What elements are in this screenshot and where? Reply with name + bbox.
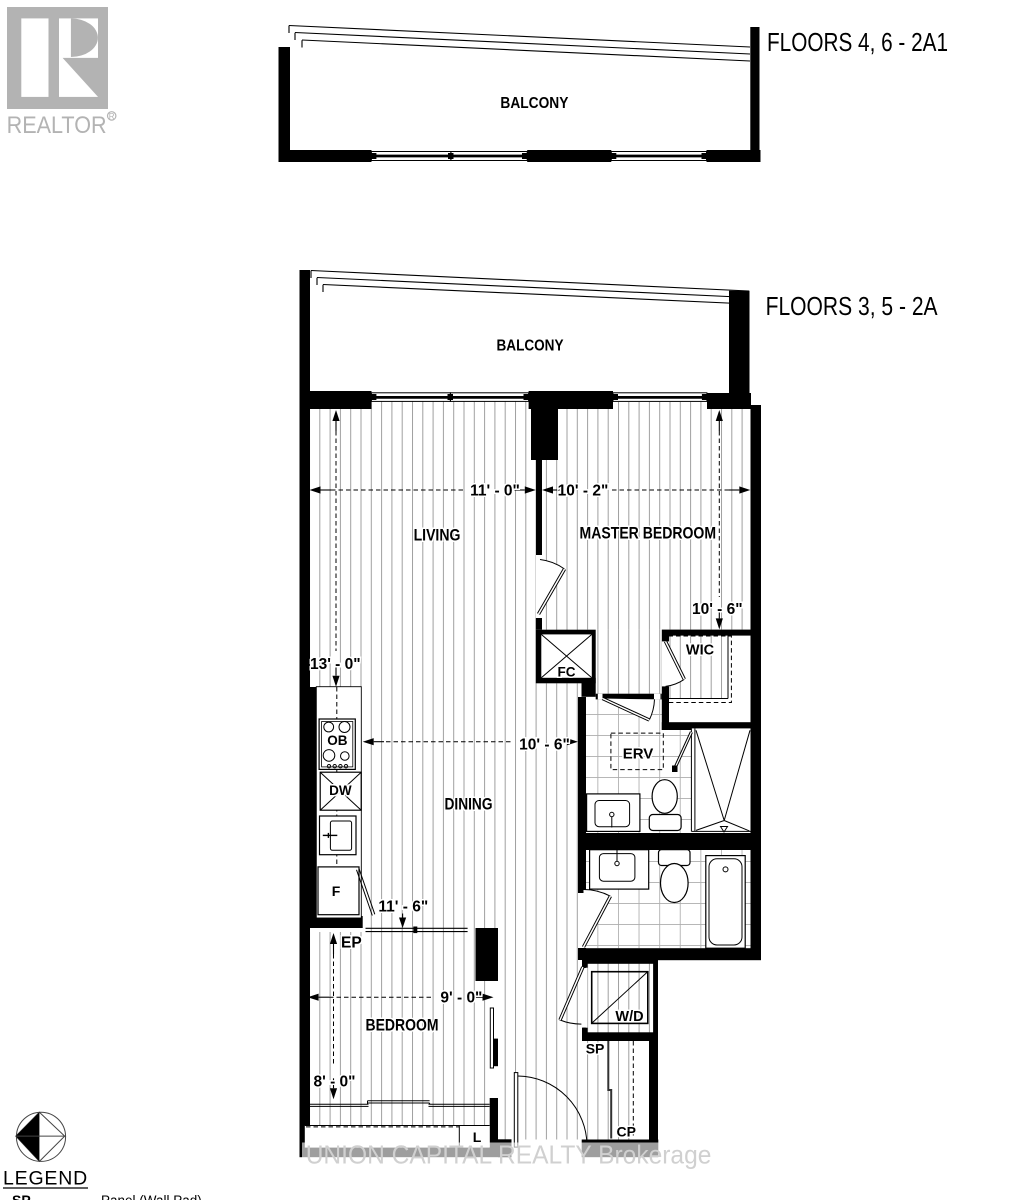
svg-text:OB: OB bbox=[327, 733, 348, 748]
svg-text:LIVING: LIVING bbox=[414, 526, 461, 545]
svg-text:SP: SP bbox=[586, 1041, 605, 1057]
svg-text:BALCONY: BALCONY bbox=[500, 95, 568, 112]
svg-text:11' - 6": 11' - 6" bbox=[378, 899, 428, 916]
svg-text:10' - 6": 10' - 6" bbox=[519, 737, 570, 754]
svg-text:SP: SP bbox=[12, 1192, 31, 1200]
svg-text:FLOORS 3, 5 - 2A: FLOORS 3, 5 - 2A bbox=[766, 291, 939, 321]
svg-text:BEDROOM: BEDROOM bbox=[366, 1015, 439, 1034]
svg-text:CP: CP bbox=[617, 1124, 636, 1140]
svg-text:DINING: DINING bbox=[445, 795, 493, 814]
svg-text:FLOORS 4, 6 - 2A1: FLOORS 4, 6 - 2A1 bbox=[767, 27, 948, 57]
svg-text:DW: DW bbox=[329, 783, 352, 798]
svg-text:LEGEND: LEGEND bbox=[3, 1168, 88, 1190]
svg-text:10' - 6": 10' - 6" bbox=[692, 601, 743, 618]
svg-text:UNION CAPITAL REALTY Brokerag: UNION CAPITAL REALTY Brokerage bbox=[306, 1140, 712, 1170]
svg-text:13' - 0": 13' - 0" bbox=[310, 656, 361, 673]
svg-text:REALTOR: REALTOR bbox=[7, 112, 107, 139]
svg-text:9' - 0": 9' - 0" bbox=[440, 989, 482, 1006]
svg-text:8' - 0": 8' - 0" bbox=[313, 1074, 355, 1091]
svg-text:EP: EP bbox=[341, 935, 362, 952]
svg-text:F: F bbox=[332, 883, 341, 899]
svg-text:10' - 2": 10' - 2" bbox=[558, 483, 609, 500]
svg-text:BALCONY: BALCONY bbox=[497, 338, 564, 355]
svg-text:ERV: ERV bbox=[623, 746, 654, 763]
svg-text:MASTER BEDROOM: MASTER BEDROOM bbox=[580, 524, 717, 543]
svg-text:WIC: WIC bbox=[686, 643, 715, 659]
svg-text:Panel (Wall Pad): Panel (Wall Pad) bbox=[101, 1193, 202, 1200]
svg-text:W/D: W/D bbox=[615, 1009, 643, 1025]
svg-text:R: R bbox=[109, 112, 115, 121]
svg-text:FC: FC bbox=[558, 665, 576, 680]
svg-text:11' - 0": 11' - 0" bbox=[470, 483, 520, 500]
